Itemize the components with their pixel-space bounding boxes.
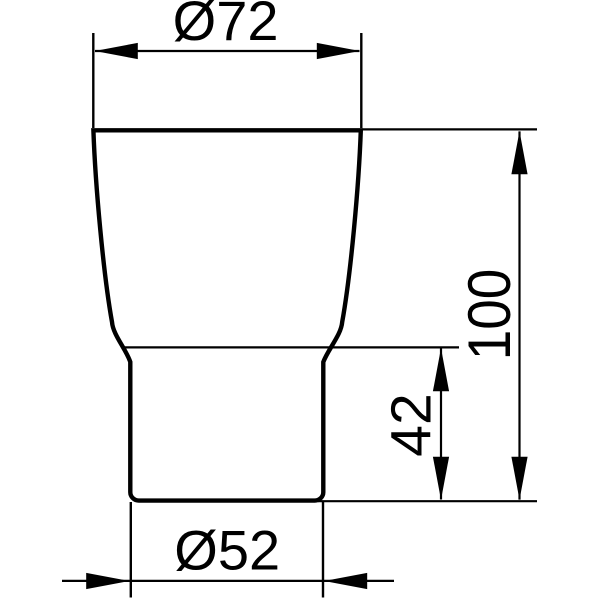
svg-text:100: 100 [457,269,524,360]
svg-text:Ø52: Ø52 [174,518,280,581]
svg-text:42: 42 [379,393,443,456]
svg-text:Ø72: Ø72 [173,0,279,52]
